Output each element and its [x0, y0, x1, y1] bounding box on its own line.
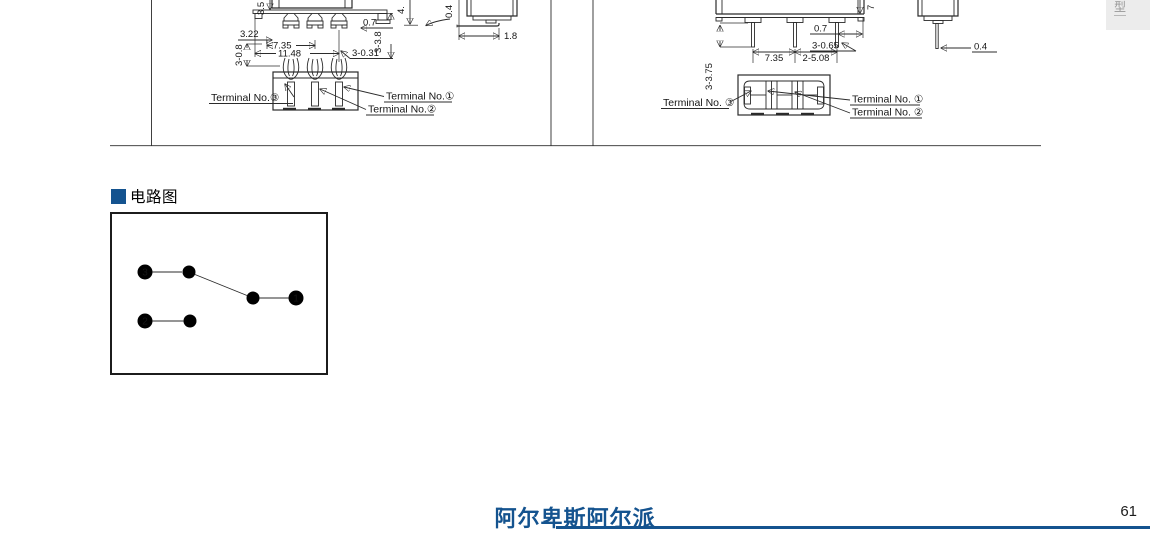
- dimension-drawings: 3.5 0.7 3.22 7.35 11.48 3-0.31 3-3.8 3-0…: [0, 0, 1150, 148]
- dim-label: 3-3.8: [373, 31, 384, 53]
- terminal-label-2: Terminal No.②: [368, 104, 437, 116]
- page-number: 61: [1120, 503, 1137, 520]
- dim-label: 3.5: [256, 2, 267, 15]
- dim-label: 0.4: [444, 5, 455, 18]
- circuit-terminal-3-label: 3: [142, 268, 148, 279]
- left-front-view: 3.5 0.7 3.22 7.35 11.48 3-0.31 3-3.8 3-0…: [234, 0, 393, 66]
- circuit-switch-pole: [195, 275, 247, 296]
- dim-label: 3-0.8: [234, 44, 245, 66]
- page-index-tab-label: 型: [1114, 0, 1126, 16]
- circuit-terminal-2-label: 2: [142, 317, 148, 328]
- dim-label: 1.8: [504, 31, 517, 42]
- circuit-diagram-box: 3 1 2: [110, 212, 328, 375]
- circuit-diagram: 3 1 2: [112, 214, 326, 373]
- circuit-terminal-1-label: 1: [293, 294, 299, 305]
- left-side-view: 4. 0.4 1.8: [396, 0, 517, 42]
- right-bottom-view: Terminal No. ③ Terminal No. ① Terminal N…: [661, 75, 924, 119]
- dim-label: 3-3.75: [704, 63, 715, 90]
- terminal-label-1: Terminal No.①: [386, 91, 455, 103]
- page-index-tab[interactable]: 型: [1106, 0, 1150, 30]
- dim-label: 3-0.65: [812, 41, 839, 52]
- terminal-label-3: Terminal No. ③: [663, 97, 735, 109]
- section-header: 电路图: [111, 187, 178, 205]
- left-bottom-view: Terminal No.③ Terminal No.① Terminal No.…: [209, 58, 455, 116]
- dim-label: 7.35: [765, 53, 784, 64]
- terminal-label-3: Terminal No.③: [211, 92, 280, 104]
- dim-label: 2-5.08: [803, 53, 830, 64]
- table-borders: [110, 0, 1041, 146]
- terminal-label-1: Terminal No. ①: [852, 94, 924, 106]
- circuit-terminal-1-node: 1: [247, 291, 304, 306]
- dim-label: 0.7: [363, 18, 376, 29]
- dim-label: 4.: [396, 6, 407, 14]
- section-marker-icon: [111, 189, 126, 204]
- dim-label: 11.48: [278, 49, 301, 60]
- section-title: 电路图: [130, 185, 178, 207]
- dim-label: 3.22: [240, 29, 259, 40]
- right-side-view: 0.4: [918, 0, 997, 53]
- dim-label: 7: [866, 5, 877, 10]
- circuit-terminal-3-node: 3: [138, 265, 196, 280]
- dim-label: 0.4: [974, 42, 987, 53]
- dim-label: 0.7: [814, 24, 827, 35]
- terminal-label-2: Terminal No. ②: [852, 107, 924, 119]
- circuit-terminal-2-node: 2: [138, 314, 197, 329]
- right-front-view: 7 0.7 3-0.65 7.35 2-5.08 3-3.75: [704, 0, 877, 90]
